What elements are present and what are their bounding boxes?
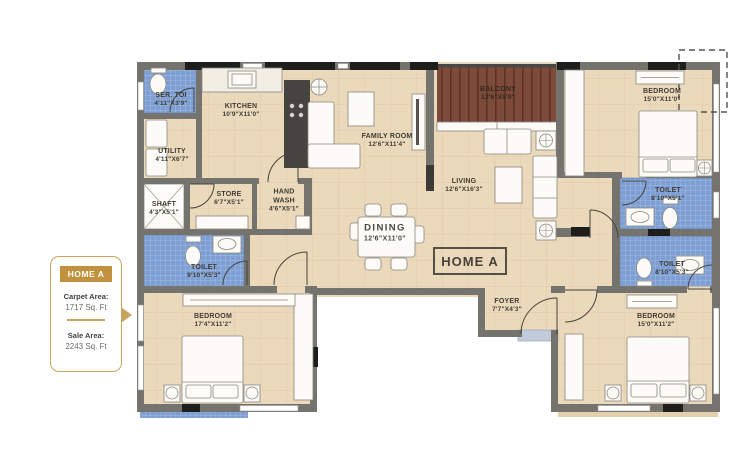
room-label-bedroom-bottom-left: BEDROOM 17'4"X11'2": [194, 312, 232, 330]
exterior-strips: [140, 412, 718, 418]
room-label-dining: DINING 12'6"X11'0": [364, 222, 406, 243]
room-label-hand-wash: HAND WASH 4'6"X5'1": [262, 188, 306, 215]
room-label-living: LIVING 12'6"X16'3": [445, 177, 482, 195]
sale-area-label: Sale Area:: [51, 331, 121, 340]
room-label-toilet-right-lower: TOILET 8'10"X5'3": [655, 260, 689, 278]
room-label-ser-toi: SER. TOI 4'11"X3'9": [154, 91, 187, 109]
room-label-toilet-right-upper: TOILET 8'10"X5'1": [651, 186, 685, 204]
unit-badge: HOME A: [60, 266, 113, 282]
unit-label-box: HOME A: [433, 247, 507, 275]
room-label-utility: UTILITY 4'11"X6'7": [155, 147, 188, 165]
room-label-family-room: FAMILY ROOM 12'6"X11'4": [362, 132, 413, 150]
panel-divider: [67, 319, 105, 321]
room-label-balcony: BALCONY 12'6"X5'9": [480, 85, 516, 103]
floorplan-page: SER. TOI 4'11"X3'9" KITCHEN 10'9"X11'0" …: [0, 0, 732, 455]
room-label-bedroom-top-right: BEDROOM 15'0"X11'0": [643, 87, 681, 105]
unit-info-panel: HOME A Carpet Area: 1717 Sq. Ft Sale Are…: [50, 256, 122, 372]
unit-label-text: HOME A: [441, 254, 499, 269]
room-label-store: STORE 6'7"X5'1": [214, 190, 244, 208]
room-label-kitchen: KITCHEN 10'9"X11'0": [222, 102, 259, 120]
room-label-toilet-left: TOILET 9'10"X5'3": [187, 263, 221, 281]
carpet-area-value: 1717 Sq. Ft: [51, 303, 121, 312]
carpet-area-label: Carpet Area:: [51, 292, 121, 301]
room-label-shaft: SHAFT 4'3"X5'1": [149, 200, 179, 218]
panel-pointer-arrow: [121, 307, 132, 323]
sale-area-value: 2243 Sq. Ft: [51, 342, 121, 351]
room-label-foyer: FOYER 7'7"X4'3": [492, 297, 522, 315]
room-label-bedroom-bottom-right: BEDROOM 15'0"X11'2": [637, 312, 675, 330]
